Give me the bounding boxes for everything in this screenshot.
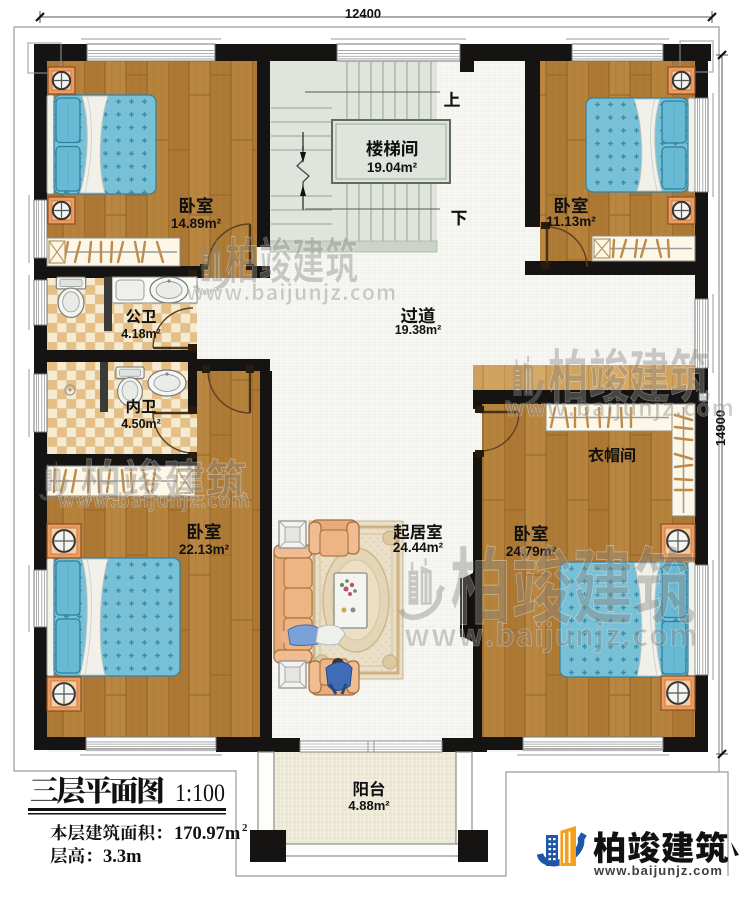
svg-text:170.97m: 170.97m: [174, 824, 241, 844]
svg-text:12400: 12400: [345, 6, 381, 21]
svg-text:22.13m²: 22.13m²: [179, 542, 230, 557]
svg-text:4.18m²: 4.18m²: [121, 327, 161, 341]
svg-text:4.50m²: 4.50m²: [121, 417, 161, 431]
svg-text:19.38m²: 19.38m²: [395, 323, 442, 337]
svg-text:4.88m²: 4.88m²: [348, 798, 390, 813]
svg-text:www.baijunjz.com: www.baijunjz.com: [593, 863, 723, 878]
svg-text:14.89m²: 14.89m²: [171, 216, 222, 231]
svg-text:11.13m²: 11.13m²: [546, 214, 596, 229]
svg-text:1:100: 1:100: [175, 780, 225, 807]
svg-text:24.44m²: 24.44m²: [393, 540, 444, 555]
svg-text:19.04m²: 19.04m²: [367, 160, 418, 175]
svg-text:3.3m: 3.3m: [103, 847, 142, 867]
svg-text:2: 2: [242, 822, 248, 834]
